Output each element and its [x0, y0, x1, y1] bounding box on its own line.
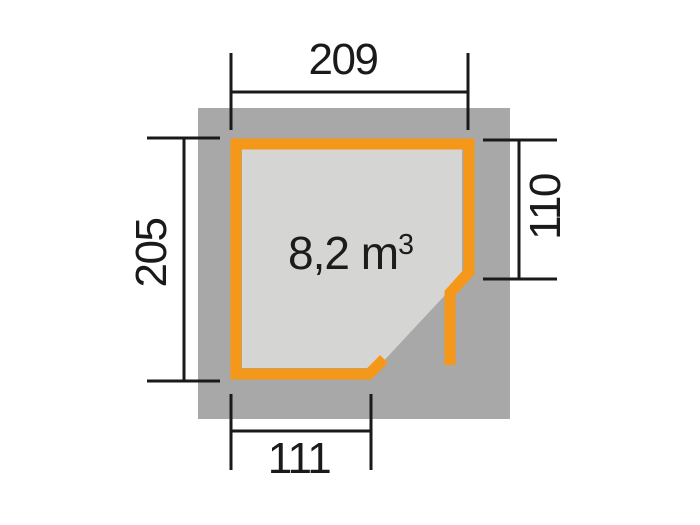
volume-label: 8,2 m3 — [288, 230, 414, 276]
dimension-label-right-height: 110 — [524, 174, 568, 240]
dimension-label-bottom-width: 111 — [268, 437, 330, 481]
dimension-label-left-height: 205 — [130, 219, 174, 288]
dimension-label-top-width: 209 — [309, 38, 378, 82]
volume-value: 8,2 m — [288, 227, 398, 279]
floor-plan-diagram: 209 205 110 111 8,2 m3 — [0, 0, 700, 525]
volume-superscript: 3 — [398, 229, 414, 261]
